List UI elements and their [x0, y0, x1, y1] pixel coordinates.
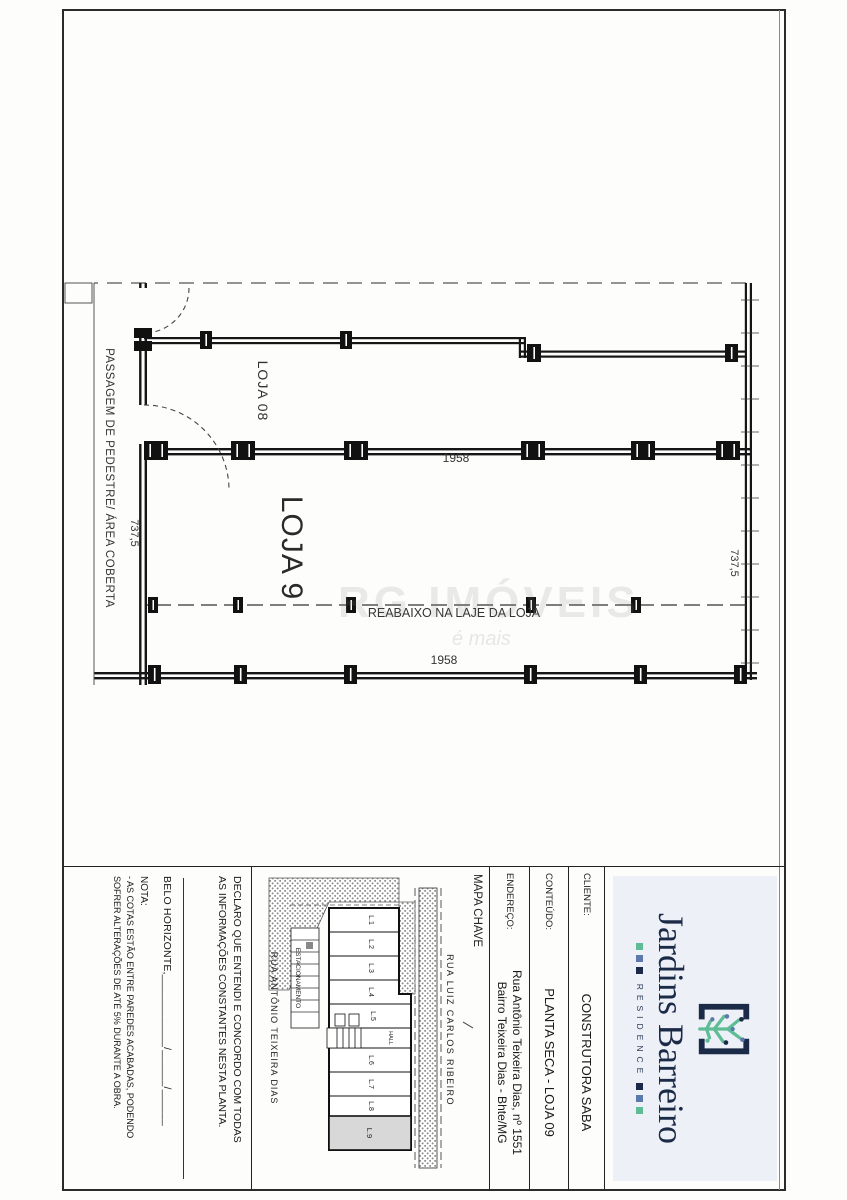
- signature-line: [183, 878, 184, 1179]
- loja8-label: LOJA 08: [255, 361, 271, 422]
- walls: [94, 283, 757, 685]
- svg-text:L.2: L.2: [367, 939, 374, 949]
- dim-737-front: 737,5: [128, 519, 140, 547]
- conteudo-value: PLANTA SECA - LOJA 09: [541, 935, 557, 1190]
- endereco-label: ENDEREÇO:: [504, 867, 515, 935]
- svg-text:L.9: L.9: [365, 1128, 374, 1138]
- endereco-line2: Bairro Teixeira Dias - Bhte/MG: [496, 982, 510, 1144]
- mapa-chave-label: MAPA CHAVE: [471, 874, 483, 947]
- endereco-row: ENDEREÇO: Rua Antônio Teixeira Dias, nº …: [489, 867, 529, 1190]
- dim-1958-right: 1958: [431, 653, 458, 667]
- logo-cell: Jardins Barreiro RESIDENCE: [604, 867, 785, 1190]
- svg-text:L.8: L.8: [367, 1101, 374, 1111]
- key-map: MAPA CHAVE RUA LUIZ CARLOS RIBEIRO: [253, 872, 489, 1184]
- dim-737-back: 737,5: [728, 549, 740, 577]
- nota-label: NOTA:: [138, 876, 149, 1181]
- logo-square-blue: [637, 955, 644, 962]
- street-top-label: RUA LUIZ CARLOS RIBEIRO: [445, 954, 455, 1106]
- mapa-chave-cell: MAPA CHAVE RUA LUIZ CARLOS RIBEIRO: [251, 867, 489, 1190]
- logo-box: Jardins Barreiro RESIDENCE: [613, 876, 777, 1181]
- passage-label: PASSAGEM DE PEDESTRE/ ÁREA COBERTA: [103, 348, 116, 608]
- logo-square-green: [637, 943, 644, 950]
- date-line: BELO HORIZONTE,____________/______/_____…: [161, 876, 173, 1181]
- drawing-sheet: PASSAGEM DE PEDESTRE/ ÁREA COBERTA LOJA …: [0, 0, 847, 1200]
- hall-label: HALL: [387, 1031, 393, 1045]
- street-bottom-label: RUA ANTÔNIO TEIXEIRA DIAS: [269, 952, 279, 1105]
- svg-text:L.1: L.1: [367, 915, 374, 925]
- logo-square-green: [637, 1107, 644, 1114]
- endereco-value: Rua Antônio Teixeira Dias, nº 1551 Bairr…: [495, 935, 524, 1190]
- sidewalk-lines: [65, 283, 94, 685]
- conteudo-row: CONTEÚDO: PLANTA SECA - LOJA 09: [529, 867, 568, 1190]
- loja9-label: LOJA 9: [275, 496, 308, 600]
- svg-text:L.6: L.6: [367, 1055, 374, 1065]
- cliente-row: CLIENTE: CONSTRUTORA SABA: [568, 867, 604, 1190]
- estacionamento-label: ESTACIONAMENTO: [294, 948, 301, 1008]
- conteudo-label: CONTEÚDO:: [544, 867, 555, 935]
- logo-square-navy: [637, 967, 644, 974]
- logo-subtitle-row: RESIDENCE: [635, 943, 645, 1115]
- logo-wordmark: Jardins Barreiro: [653, 913, 689, 1144]
- endereco-line1: Rua Antônio Teixeira Dias, nº 1551: [510, 970, 524, 1155]
- logo-subtitle: RESIDENCE: [635, 979, 645, 1079]
- logo-square-blue: [637, 1095, 644, 1102]
- nota-text: - AS COTAS ESTÃO ENTRE PAREDES ACABADAS,…: [111, 876, 135, 1181]
- svg-text:L.4: L.4: [367, 987, 374, 997]
- pillars: [134, 328, 747, 684]
- cliente-value: CONSTRUTORA SABA: [579, 935, 595, 1190]
- svg-text:L.7: L.7: [367, 1079, 374, 1089]
- declaration-text: DECLARO QUE ENTENDI E CONCORDO COM TODAS…: [214, 876, 244, 1181]
- parking: ESTACIONAMENTO: [291, 928, 319, 1028]
- cliente-label: CLIENTE:: [581, 867, 592, 935]
- svg-text:L.5: L.5: [369, 1011, 376, 1021]
- notes-cell: DECLARO QUE ENTENDI E CONCORDO COM TODAS…: [63, 867, 251, 1190]
- north-arrow-icon: [463, 1022, 473, 1028]
- title-block: Jardins Barreiro RESIDENCE CLIENTE: CONS…: [63, 866, 785, 1190]
- dim-1958-mid: 1958: [443, 451, 470, 465]
- logo-square-navy: [637, 1083, 644, 1090]
- reabaixo-label: REABAIXO NA LAJE DA LOJA: [368, 606, 541, 620]
- svg-text:L.3: L.3: [367, 963, 374, 973]
- scanned-sheet-photo: PASSAGEM DE PEDESTRE/ ÁREA COBERTA LOJA …: [0, 0, 847, 1200]
- tree-logo-icon: [693, 998, 755, 1060]
